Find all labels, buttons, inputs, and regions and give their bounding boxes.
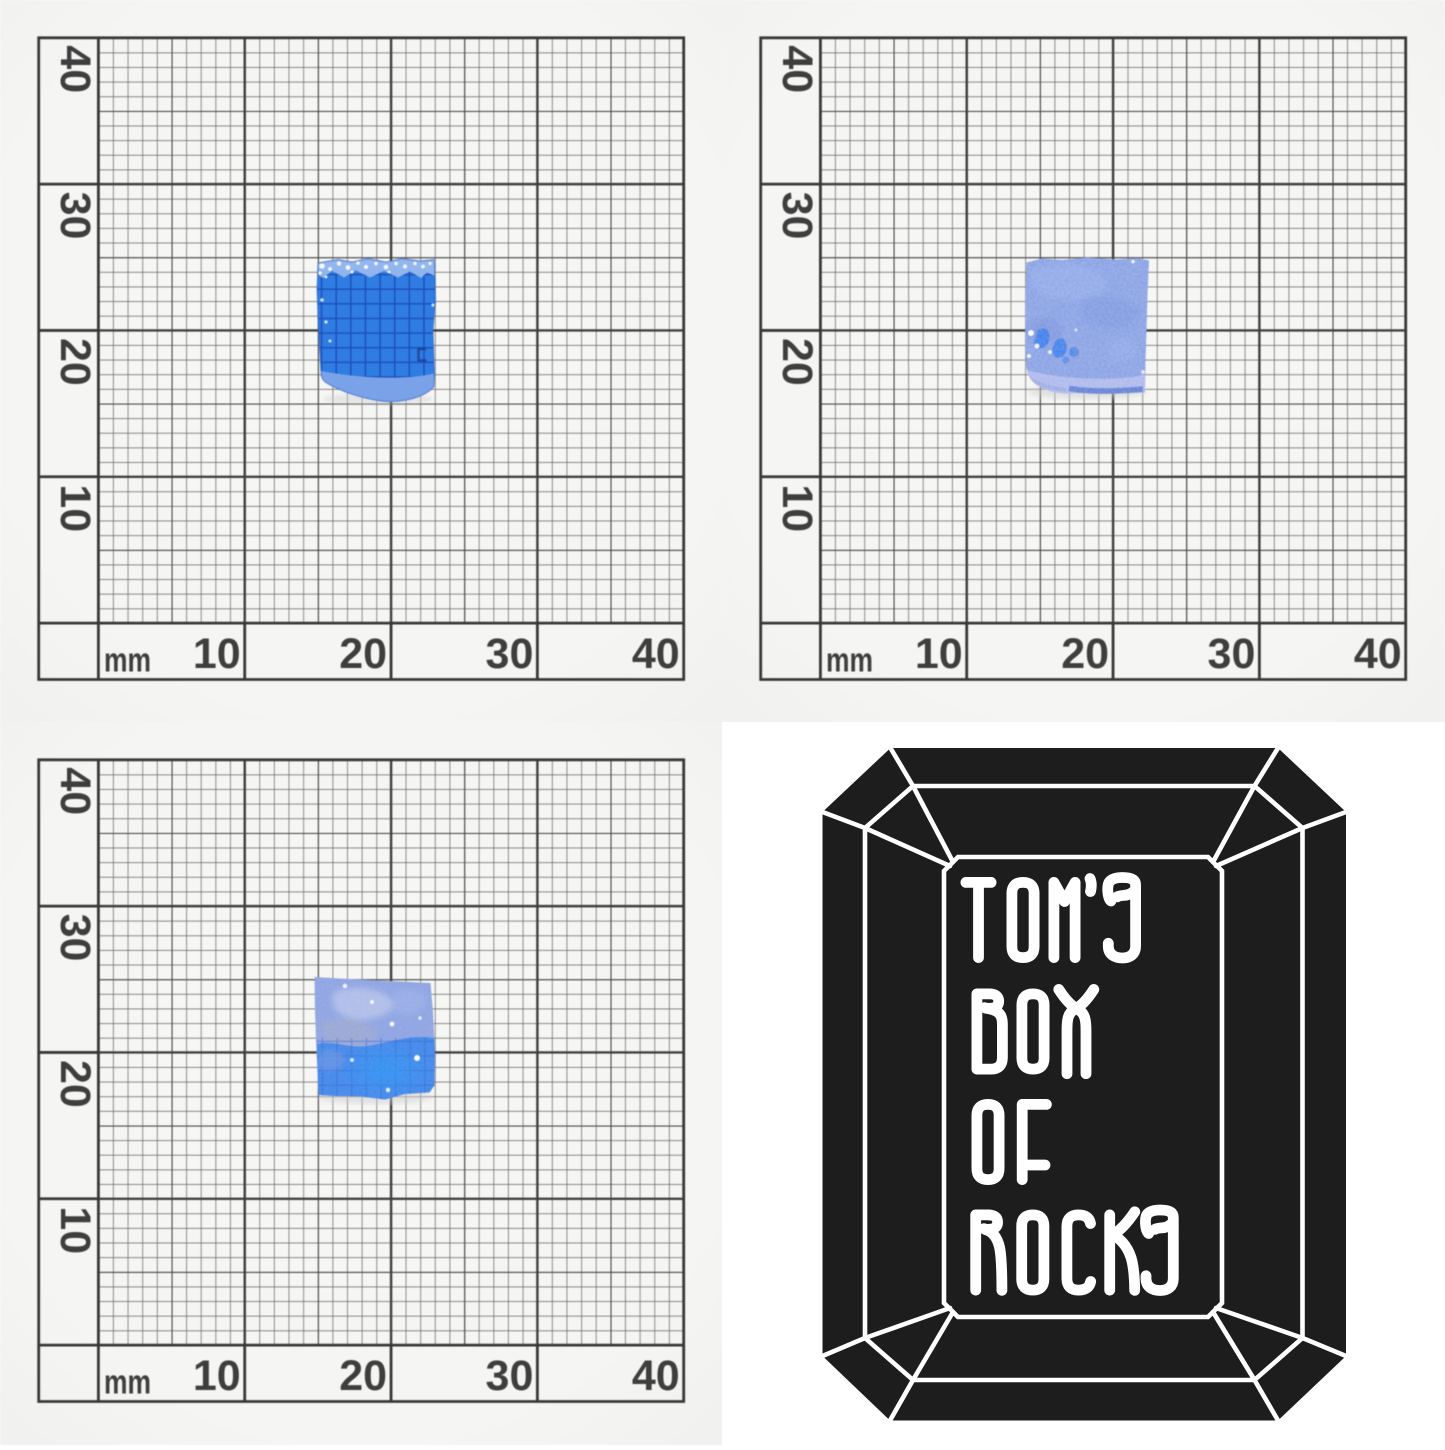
svg-text:mm: mm	[104, 642, 151, 680]
svg-text:20: 20	[339, 1352, 387, 1400]
svg-text:40: 40	[1354, 630, 1402, 678]
svg-text:20: 20	[51, 1060, 99, 1108]
svg-text:10: 10	[773, 484, 821, 532]
svg-text:10: 10	[193, 630, 241, 678]
svg-text:30: 30	[51, 914, 99, 962]
svg-text:10: 10	[915, 630, 963, 678]
svg-text:30: 30	[1208, 630, 1256, 678]
svg-text:40: 40	[632, 1352, 680, 1400]
svg-text:10: 10	[193, 1352, 241, 1400]
svg-text:30: 30	[486, 1352, 534, 1400]
svg-text:30: 30	[773, 192, 821, 240]
svg-text:20: 20	[773, 338, 821, 386]
svg-text:10: 10	[51, 1206, 99, 1254]
svg-text:mm: mm	[104, 1364, 151, 1402]
svg-text:mm: mm	[826, 642, 873, 680]
svg-text:20: 20	[339, 630, 387, 678]
svg-text:40: 40	[51, 45, 99, 93]
svg-text:30: 30	[486, 630, 534, 678]
svg-text:10: 10	[51, 484, 99, 532]
svg-text:20: 20	[51, 338, 99, 386]
svg-text:40: 40	[773, 45, 821, 93]
svg-text:30: 30	[51, 192, 99, 240]
svg-text:40: 40	[51, 767, 99, 815]
svg-text:40: 40	[632, 630, 680, 678]
svg-text:20: 20	[1061, 630, 1109, 678]
